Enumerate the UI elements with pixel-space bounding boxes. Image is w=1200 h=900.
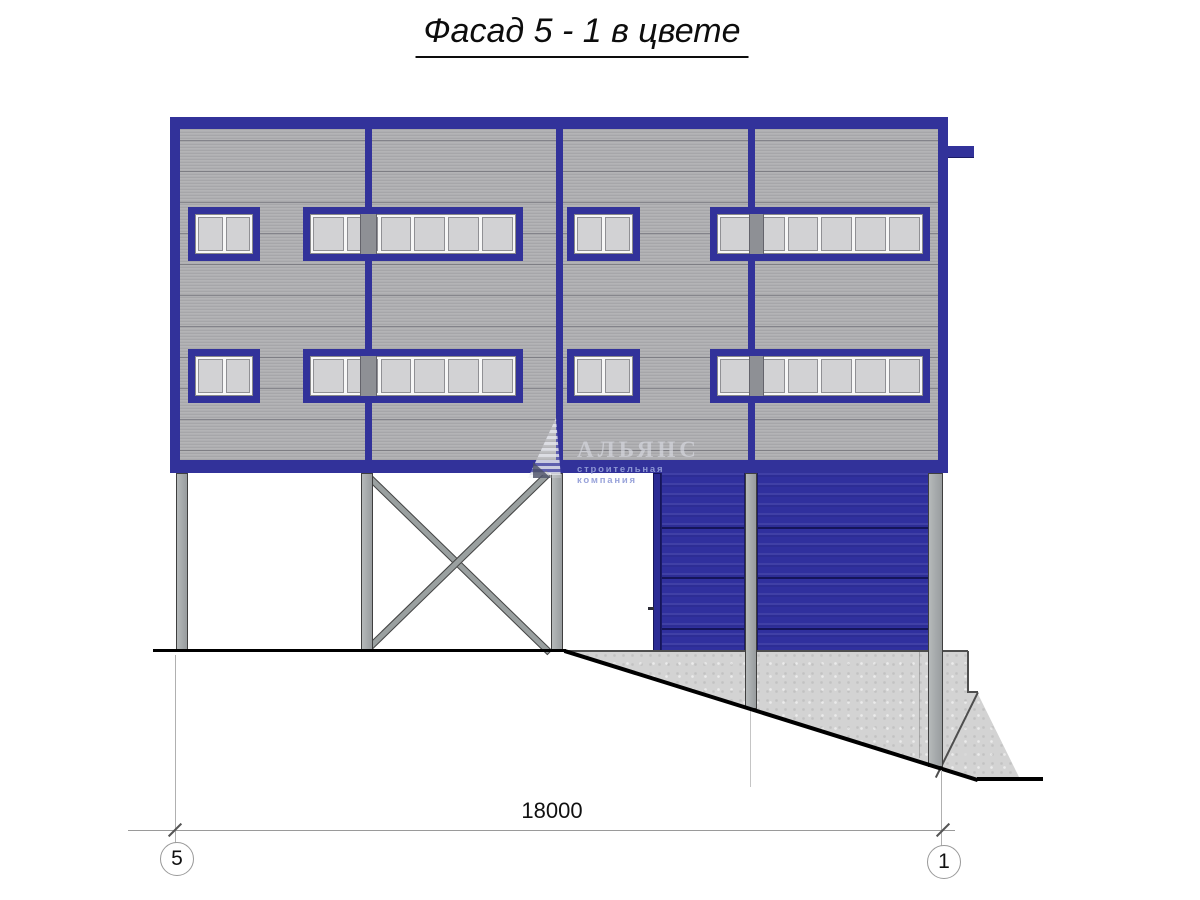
extension-line [941,770,942,846]
window-glazing [310,214,516,254]
window [303,349,523,403]
window-pane [448,359,479,393]
axis-marker-label: 1 [938,850,950,874]
axis-marker-1: 1 [927,845,961,879]
window [710,349,930,403]
window-glazing [717,356,923,396]
window [303,207,523,261]
window-pane [448,217,479,251]
window [188,207,260,261]
window-pane [414,217,445,251]
steel-column [551,473,563,652]
window-pane [788,217,819,251]
door-panel-seam [758,577,929,579]
window-pane [855,359,886,393]
window-glazing [195,214,253,254]
door-jamb [653,473,661,653]
window-pane [313,359,344,393]
door-panel-seam [662,527,744,529]
window-pane [482,359,513,393]
steel-column [928,473,943,767]
window-pane [381,217,412,251]
facade-mullion [748,129,755,460]
door-panel-seam [758,628,929,630]
window-pane [198,217,223,251]
facade-mullion [556,129,563,460]
window-pane [720,359,751,393]
column-behind-glass [360,214,377,254]
window [710,207,930,261]
dimension-label: 18000 [472,798,632,824]
garage-door [757,473,930,651]
concrete-joint-line [919,652,920,758]
hidden-pile-line [750,709,751,787]
window-pane [313,217,344,251]
door-panel-seam [662,628,744,630]
window-glazing [717,214,923,254]
drawing-title: Фасад 5 - 1 в цвете [416,12,749,58]
window-glazing [195,356,253,396]
window-pane [720,217,751,251]
window-pane [577,359,602,393]
window-pane [821,359,852,393]
column-behind-glass [360,356,377,396]
window-glazing [310,356,516,396]
window-pane [788,359,819,393]
roof-bracket [948,146,974,158]
window [567,349,640,403]
axis-marker-5: 5 [160,842,194,876]
window [188,349,260,403]
window-pane [821,217,852,251]
window-pane [889,217,920,251]
door-panel-seam [758,527,929,529]
ground-line [153,649,566,652]
window-pane [855,217,886,251]
extension-line [175,655,176,843]
window-pane [381,359,412,393]
steel-column [745,473,757,709]
window-pane [577,217,602,251]
column-behind-glass [749,214,764,254]
window [567,207,640,261]
window-pane [889,359,920,393]
building-facade [170,117,948,473]
dimension-line [128,830,955,831]
window-pane [605,217,630,251]
facade-mullion [365,129,372,460]
steel-column [361,473,373,652]
window-pane [226,359,251,393]
window-pane [605,359,630,393]
x-brace-diagonal [368,476,552,655]
axis-marker-label: 5 [171,847,183,871]
column-behind-glass [749,356,764,396]
window-glazing [574,214,633,254]
facade-drawing-canvas: Фасад 5 - 1 в цвете [0,0,1200,900]
garage-door [661,473,745,651]
steel-column [176,473,188,652]
foundation-edge [566,650,968,652]
window-pane [482,217,513,251]
window-pane [226,217,251,251]
ground-line [977,777,1043,781]
foundation-edge [967,651,969,693]
window-glazing [574,356,633,396]
window-pane [198,359,223,393]
window-pane [414,359,445,393]
door-panel-seam [662,577,744,579]
door-handle [648,607,654,610]
